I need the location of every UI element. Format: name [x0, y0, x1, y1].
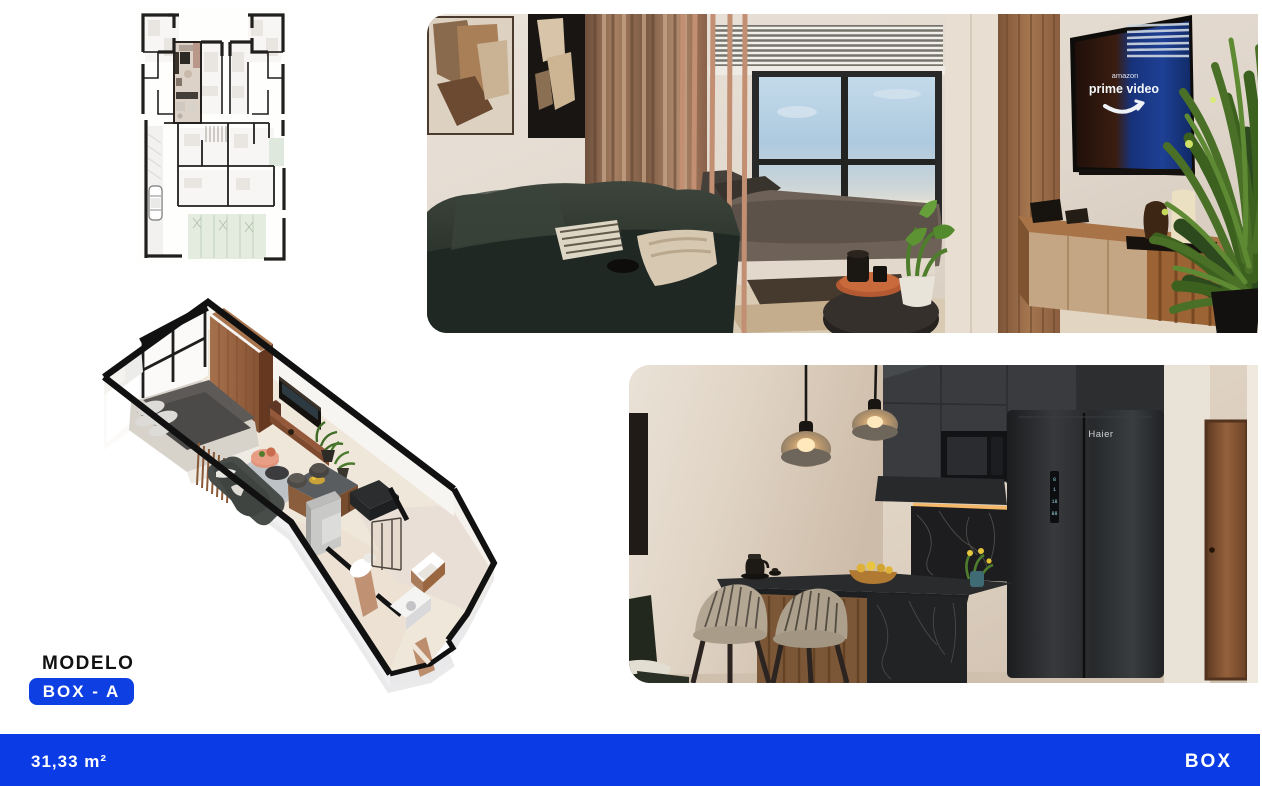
svg-text:88: 88	[1051, 511, 1057, 517]
svg-text:prime video: prime video	[1089, 82, 1160, 96]
svg-text:18: 18	[1051, 499, 1057, 505]
svg-text:8: 8	[1053, 477, 1056, 483]
svg-text:1: 1	[1053, 487, 1056, 493]
svg-text:amazon: amazon	[1112, 71, 1139, 80]
svg-text:Haier: Haier	[1088, 429, 1113, 440]
